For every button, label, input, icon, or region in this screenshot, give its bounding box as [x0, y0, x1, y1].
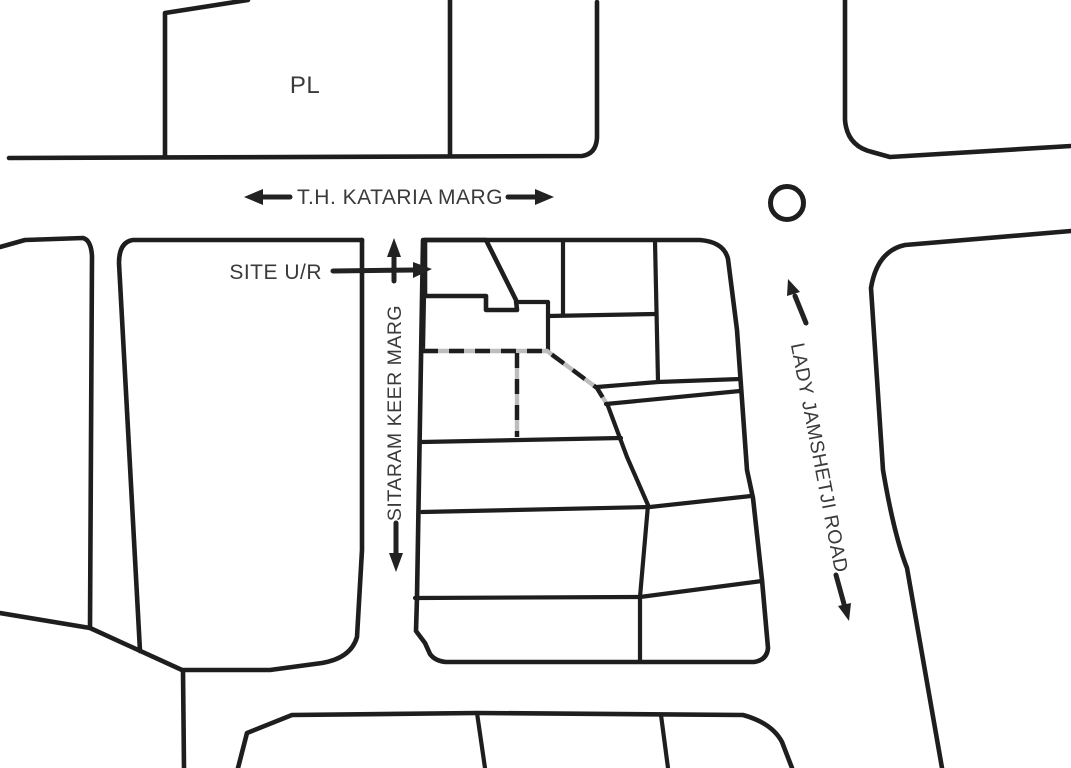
map-linework	[0, 0, 1071, 768]
bottom-plot-dividers	[477, 713, 668, 768]
site-pointer-arrow-icon	[333, 262, 432, 278]
west-road-label: SITARAM KEER MARG	[384, 305, 406, 521]
top-road-label: T.H. KATARIA MARG	[297, 186, 503, 209]
interior-divider-h4	[415, 597, 640, 598]
interior-lane-upper-line	[597, 379, 740, 387]
steep-interior-boundary	[608, 406, 648, 662]
west-road-arrow-down-icon	[389, 523, 403, 572]
interior-lane-lower-line	[606, 391, 740, 404]
roundabout-circle	[771, 187, 804, 220]
top-road-arrow-right-icon	[508, 189, 554, 205]
east-road-label: LADY JAMSHETJI ROAD	[786, 341, 852, 574]
bottom-left-plot-divider	[183, 671, 184, 768]
interior-divider-diag	[640, 581, 762, 597]
bottom-road-lower-edge	[238, 713, 792, 768]
top-road-arrow-left-icon	[244, 189, 290, 205]
top-road-upper-edge-right	[845, 0, 1071, 157]
interior-divider-v2	[655, 241, 658, 381]
interior-divider-h3	[422, 496, 751, 512]
left-block-a-boundary	[0, 238, 92, 628]
interior-divider-h2	[422, 438, 621, 442]
pl-label: PL	[290, 72, 320, 99]
east-road-arrow-down-icon	[836, 575, 851, 621]
lady-jamshetji-road-east-edge	[871, 231, 1071, 768]
west-road-arrow-up-icon	[387, 238, 401, 281]
sitaram-keer-marg-west-edge	[182, 240, 362, 670]
left-block-b-boundary	[119, 240, 362, 651]
east-road-arrow-up-icon	[787, 279, 806, 323]
interior-divider-h1	[548, 314, 656, 316]
site-label: SITE U/R	[229, 261, 322, 284]
map-labels: PL T.H. KATARIA MARG SITE U/R SITARAM KE…	[229, 72, 852, 575]
site-location-map: PL T.H. KATARIA MARG SITE U/R SITARAM KE…	[0, 0, 1071, 768]
site-polygon	[425, 240, 517, 310]
